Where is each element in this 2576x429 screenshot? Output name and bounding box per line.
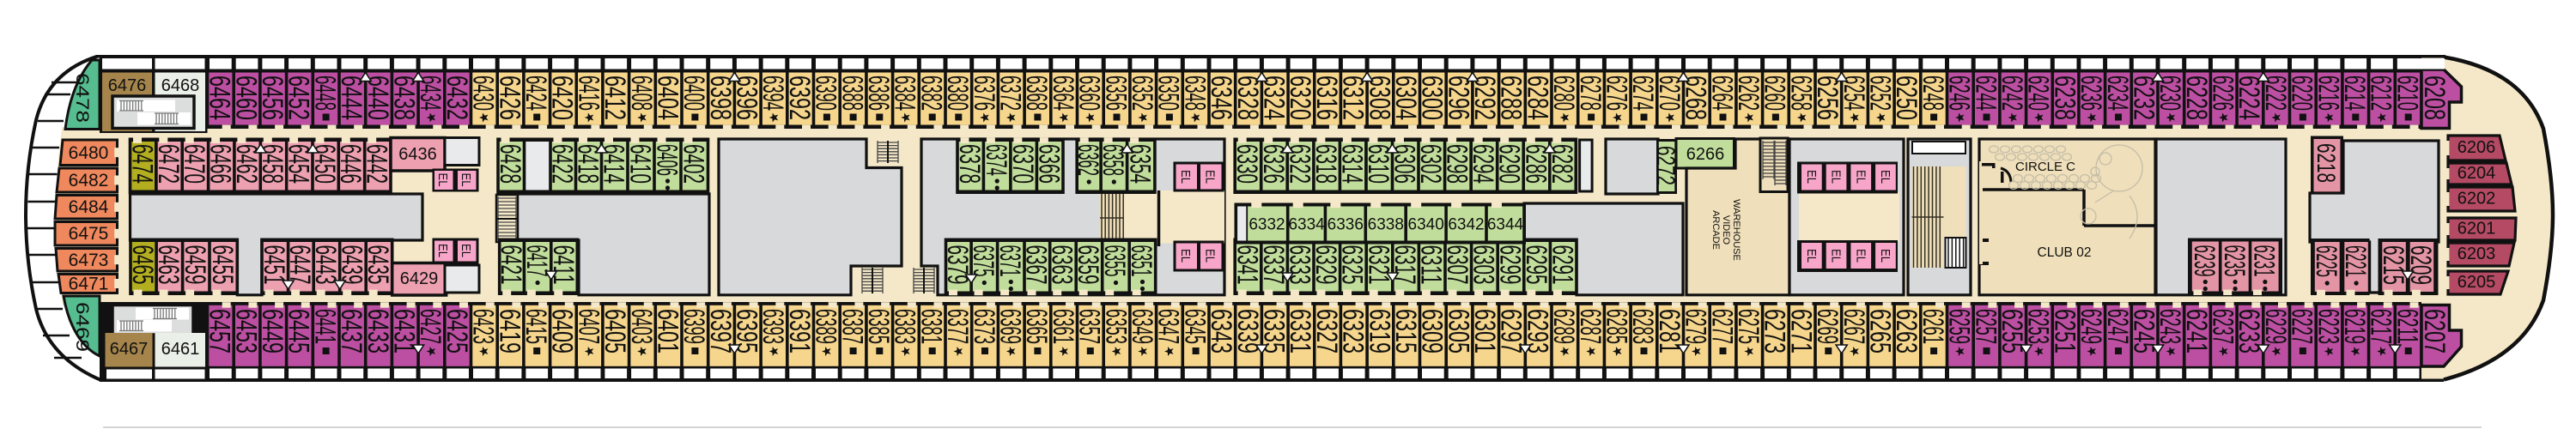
svg-text:6266: 6266 (1686, 145, 1725, 164)
svg-text:EL: EL (1178, 170, 1193, 184)
svg-text:EL: EL (1853, 249, 1868, 263)
svg-text:6478: 6478 (72, 73, 92, 123)
svg-text:6336: 6336 (1327, 216, 1364, 234)
svg-text:VIDEO: VIDEO (1721, 215, 1731, 245)
svg-text:EL: EL (435, 244, 450, 257)
svg-text:EL: EL (1853, 170, 1868, 184)
svg-text:6429: 6429 (400, 269, 439, 288)
svg-text:6231: 6231 (2248, 245, 2281, 277)
svg-text:6291: 6291 (1546, 245, 1579, 285)
svg-text:6476: 6476 (108, 76, 147, 95)
svg-text:6209: 6209 (2404, 245, 2437, 285)
svg-text:6455: 6455 (206, 245, 239, 285)
svg-text:6435: 6435 (361, 245, 394, 285)
svg-text:EL: EL (1829, 170, 1844, 184)
svg-text:6402: 6402 (677, 144, 710, 184)
svg-text:6207: 6207 (2418, 309, 2451, 353)
svg-text:6469: 6469 (72, 302, 92, 352)
svg-text:6203: 6203 (2458, 245, 2496, 263)
svg-text:EL: EL (1178, 249, 1193, 263)
svg-text:6471: 6471 (69, 275, 109, 294)
svg-text:EL: EL (459, 173, 473, 187)
svg-text:ARCADE: ARCADE (1710, 210, 1721, 250)
svg-text:EL: EL (435, 173, 450, 187)
svg-text:6208: 6208 (2418, 76, 2451, 120)
svg-text:EL: EL (1878, 249, 1893, 263)
svg-text:6205: 6205 (2458, 273, 2496, 292)
svg-text:6225: 6225 (2310, 245, 2342, 277)
svg-text:6332: 6332 (1249, 216, 1285, 234)
svg-text:WAREHOUSE: WAREHOUSE (1731, 199, 1741, 261)
svg-text:EL: EL (1203, 170, 1218, 184)
svg-text:6344: 6344 (1487, 216, 1524, 234)
svg-text:EL: EL (1804, 249, 1819, 263)
svg-text:EL: EL (459, 244, 473, 257)
svg-text:6351: 6351 (1125, 245, 1157, 277)
svg-text:6473: 6473 (69, 251, 109, 270)
svg-text:6235: 6235 (2218, 245, 2251, 277)
svg-text:CIRCLE C: CIRCLE C (2015, 160, 2075, 174)
svg-text:6442: 6442 (361, 144, 393, 184)
svg-text:EL: EL (1804, 170, 1819, 184)
svg-text:6467: 6467 (110, 340, 149, 359)
svg-text:6338: 6338 (1368, 216, 1404, 234)
svg-text:EL: EL (1203, 249, 1218, 263)
svg-text:6215: 6215 (2377, 245, 2409, 285)
svg-text:6239: 6239 (2188, 245, 2221, 277)
svg-text:CLUB 02: CLUB 02 (2038, 245, 2092, 260)
svg-text:6484: 6484 (69, 197, 109, 217)
svg-text:6204: 6204 (2458, 164, 2496, 183)
svg-text:EL: EL (1829, 249, 1844, 263)
svg-text:EL: EL (1878, 170, 1893, 184)
svg-text:6206: 6206 (2458, 138, 2496, 157)
svg-text:6428: 6428 (494, 144, 526, 184)
svg-text:6201: 6201 (2458, 220, 2496, 239)
svg-text:6342: 6342 (1448, 216, 1484, 234)
svg-text:6468: 6468 (161, 76, 200, 95)
svg-text:6340: 6340 (1408, 216, 1444, 234)
svg-text:6436: 6436 (398, 145, 437, 164)
svg-text:6221: 6221 (2339, 245, 2372, 277)
svg-text:6475: 6475 (69, 224, 109, 244)
svg-text:6202: 6202 (2458, 190, 2496, 208)
svg-text:6461: 6461 (161, 340, 200, 359)
svg-text:6334: 6334 (1288, 216, 1325, 234)
svg-text:6482: 6482 (69, 171, 109, 190)
svg-text:6480: 6480 (69, 143, 109, 163)
svg-text:6218: 6218 (2312, 143, 2340, 183)
svg-text:6366: 6366 (1033, 144, 1066, 184)
